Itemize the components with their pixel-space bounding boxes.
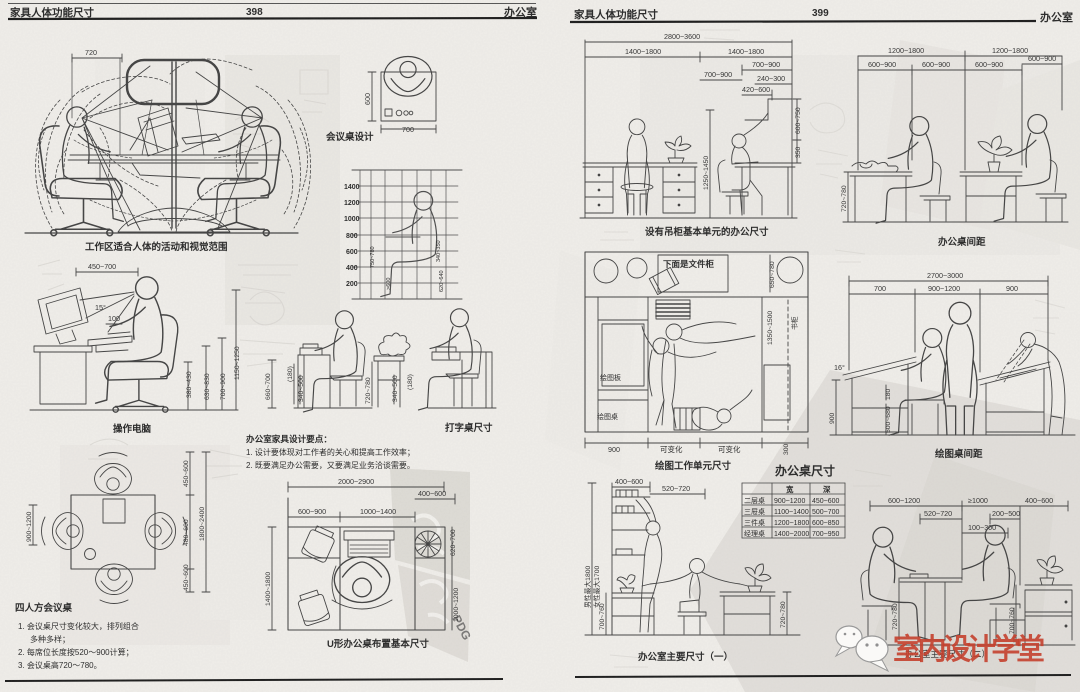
svg-text:室内设计学堂: 室内设计学堂 bbox=[893, 632, 1045, 666]
